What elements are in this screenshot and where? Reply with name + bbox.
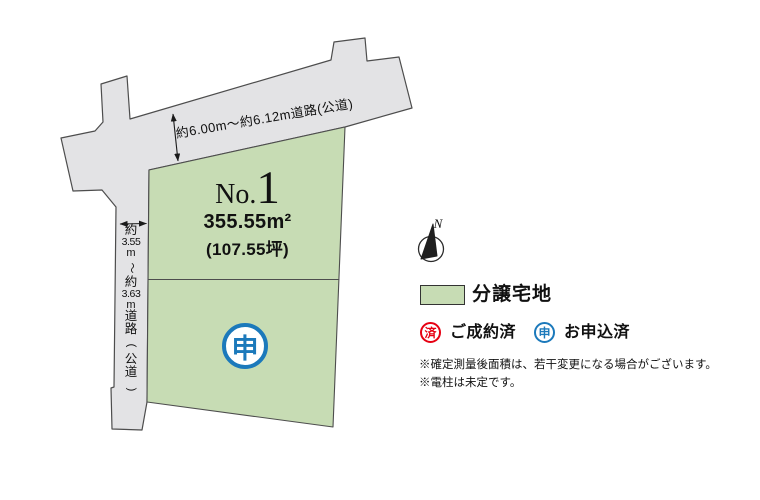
legend-sold-label: ご成約済 — [450, 322, 516, 344]
compass-north-icon: N — [419, 216, 444, 262]
left-road-label-char: 道 — [125, 310, 138, 323]
lot-number-value: 1 — [256, 168, 280, 208]
note-utility-pole: ※電柱は未定です。 — [419, 376, 521, 391]
left-road-label-char: 約 — [125, 276, 138, 289]
legend-lot-label: 分譲宅地 — [472, 283, 552, 307]
legend-applied-label: お申込済 — [564, 322, 630, 344]
lot-applied-stamp: 申 — [222, 323, 268, 369]
legend-applied-stamp: 申 — [534, 322, 555, 343]
lot-number-prefix: No. — [215, 175, 256, 215]
left-road-label-char: 約 — [125, 224, 138, 237]
legend-sold-stamp: 済 — [420, 322, 441, 343]
compass-n-label: N — [433, 216, 444, 231]
map-drawing: N — [0, 0, 760, 500]
legend-lot-swatch — [420, 285, 465, 305]
left-road-label-paren-open: ( — [126, 344, 135, 348]
lot-area-sqm: 355.55m² — [160, 211, 335, 234]
left-road-label-char: 路 — [125, 323, 138, 336]
note-survey-area: ※確定測量後面積は、若干変更になる場合がございます。 — [419, 358, 717, 373]
left-road-label-tilde: 〜 — [126, 263, 136, 274]
left-road-label-char: 道 — [125, 366, 138, 379]
land-plat-map: N 約6.00m〜約6.12m道路(公道) 約 3.55 m 〜 約 3.63 … — [0, 0, 760, 500]
left-road-label-unit: m — [126, 248, 135, 259]
lot-number: No.1 — [160, 168, 335, 208]
left-road-width-label: 約 3.55 m 〜 約 3.63 m 道 路 ( 公 道 ) — [117, 224, 145, 397]
lot-info-block: No.1 355.55m² (107.55坪) — [160, 168, 335, 260]
left-road-label-number: 3.55 — [122, 237, 141, 248]
lot-area-tsubo: (107.55坪) — [160, 235, 335, 260]
left-road-label-paren-close: ) — [126, 387, 135, 391]
